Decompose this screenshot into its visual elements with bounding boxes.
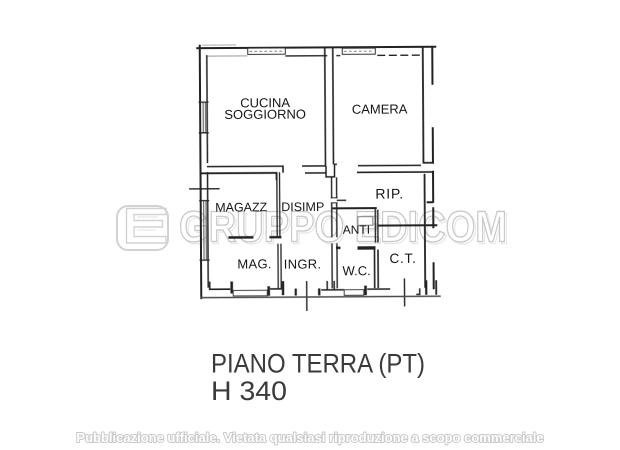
- svg-text:INGR.: INGR.: [284, 256, 322, 271]
- svg-text:W.C.: W.C.: [342, 263, 370, 278]
- svg-text:SOGGIORNO: SOGGIORNO: [224, 107, 306, 122]
- svg-text:PIANO TERRA (PT): PIANO TERRA (PT): [211, 349, 425, 379]
- svg-text:H 340: H 340: [211, 376, 287, 406]
- svg-text:MAGAZZ: MAGAZZ: [215, 200, 268, 214]
- svg-text:MAG.: MAG.: [237, 256, 272, 271]
- svg-text:CAMERA: CAMERA: [352, 101, 408, 116]
- svg-text:Pubblicazione ufficiale. Vieta: Pubblicazione ufficiale. Vietata qualsia…: [76, 430, 543, 445]
- svg-text:DISIMP: DISIMP: [281, 200, 324, 214]
- svg-text:RIP.: RIP.: [375, 185, 404, 201]
- svg-text:C.T.: C.T.: [389, 251, 416, 266]
- svg-text:ANTI: ANTI: [343, 223, 370, 237]
